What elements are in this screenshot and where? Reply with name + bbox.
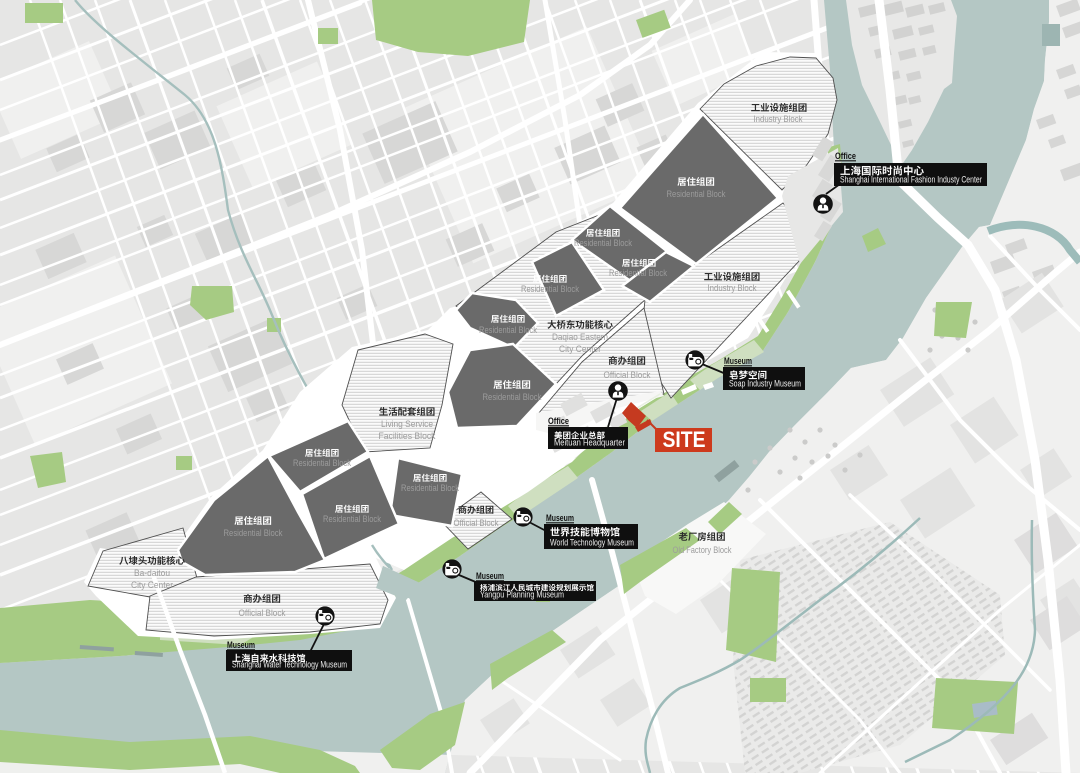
svg-text:Old Factory Block: Old Factory Block [673, 545, 732, 556]
svg-text:Residential Block: Residential Block [521, 284, 580, 294]
svg-text:Meituan Headquarter: Meituan Headquarter [554, 438, 625, 448]
svg-text:Shanghai International Fashion: Shanghai International Fashion Industy C… [840, 175, 982, 185]
svg-text:Museum: Museum [476, 571, 504, 581]
svg-text:Residential Block: Residential Block [323, 514, 382, 524]
svg-text:Office: Office [835, 151, 856, 161]
svg-text:Industry Block: Industry Block [754, 114, 803, 125]
svg-text:City Center: City Center [559, 344, 601, 355]
svg-text:Residential Block: Residential Block [224, 528, 283, 539]
svg-text:Residential Block: Residential Block [667, 189, 726, 200]
svg-text:Shanghai Water Technology Muse: Shanghai Water Technology Museum [232, 660, 347, 670]
svg-text:Ba-daitou: Ba-daitou [134, 568, 170, 579]
svg-text:City Center: City Center [131, 580, 173, 591]
svg-text:Official Block: Official Block [454, 518, 499, 528]
svg-text:Soap Industry Museum: Soap Industry Museum [729, 379, 801, 389]
svg-text:Industry Block: Industry Block [708, 283, 757, 294]
svg-text:World Technology Museum: World Technology Museum [550, 538, 634, 548]
svg-text:SITE: SITE [663, 427, 706, 452]
svg-text:Office: Office [548, 416, 569, 426]
svg-text:Museum: Museum [227, 640, 255, 650]
svg-text:Museum: Museum [546, 513, 574, 523]
svg-text:Official Block: Official Block [239, 608, 286, 619]
svg-text:Official Block: Official Block [604, 370, 651, 381]
svg-text:Residential Block: Residential Block [401, 483, 460, 493]
svg-text:Residential Block: Residential Block [483, 392, 542, 403]
svg-text:Residential Block: Residential Block [609, 268, 668, 278]
svg-text:Living Service: Living Service [381, 419, 433, 430]
svg-text:Residential Block: Residential Block [574, 238, 633, 248]
svg-text:Yangpu Planning Museum: Yangpu Planning Museum [480, 590, 564, 600]
svg-text:Museum: Museum [724, 356, 752, 366]
svg-text:Residential Block: Residential Block [479, 325, 538, 335]
svg-text:Daqiao Eastern: Daqiao Eastern [552, 332, 608, 343]
svg-text:Residential Block: Residential Block [293, 458, 352, 468]
svg-text:Facilities Block: Facilities Block [379, 431, 436, 442]
